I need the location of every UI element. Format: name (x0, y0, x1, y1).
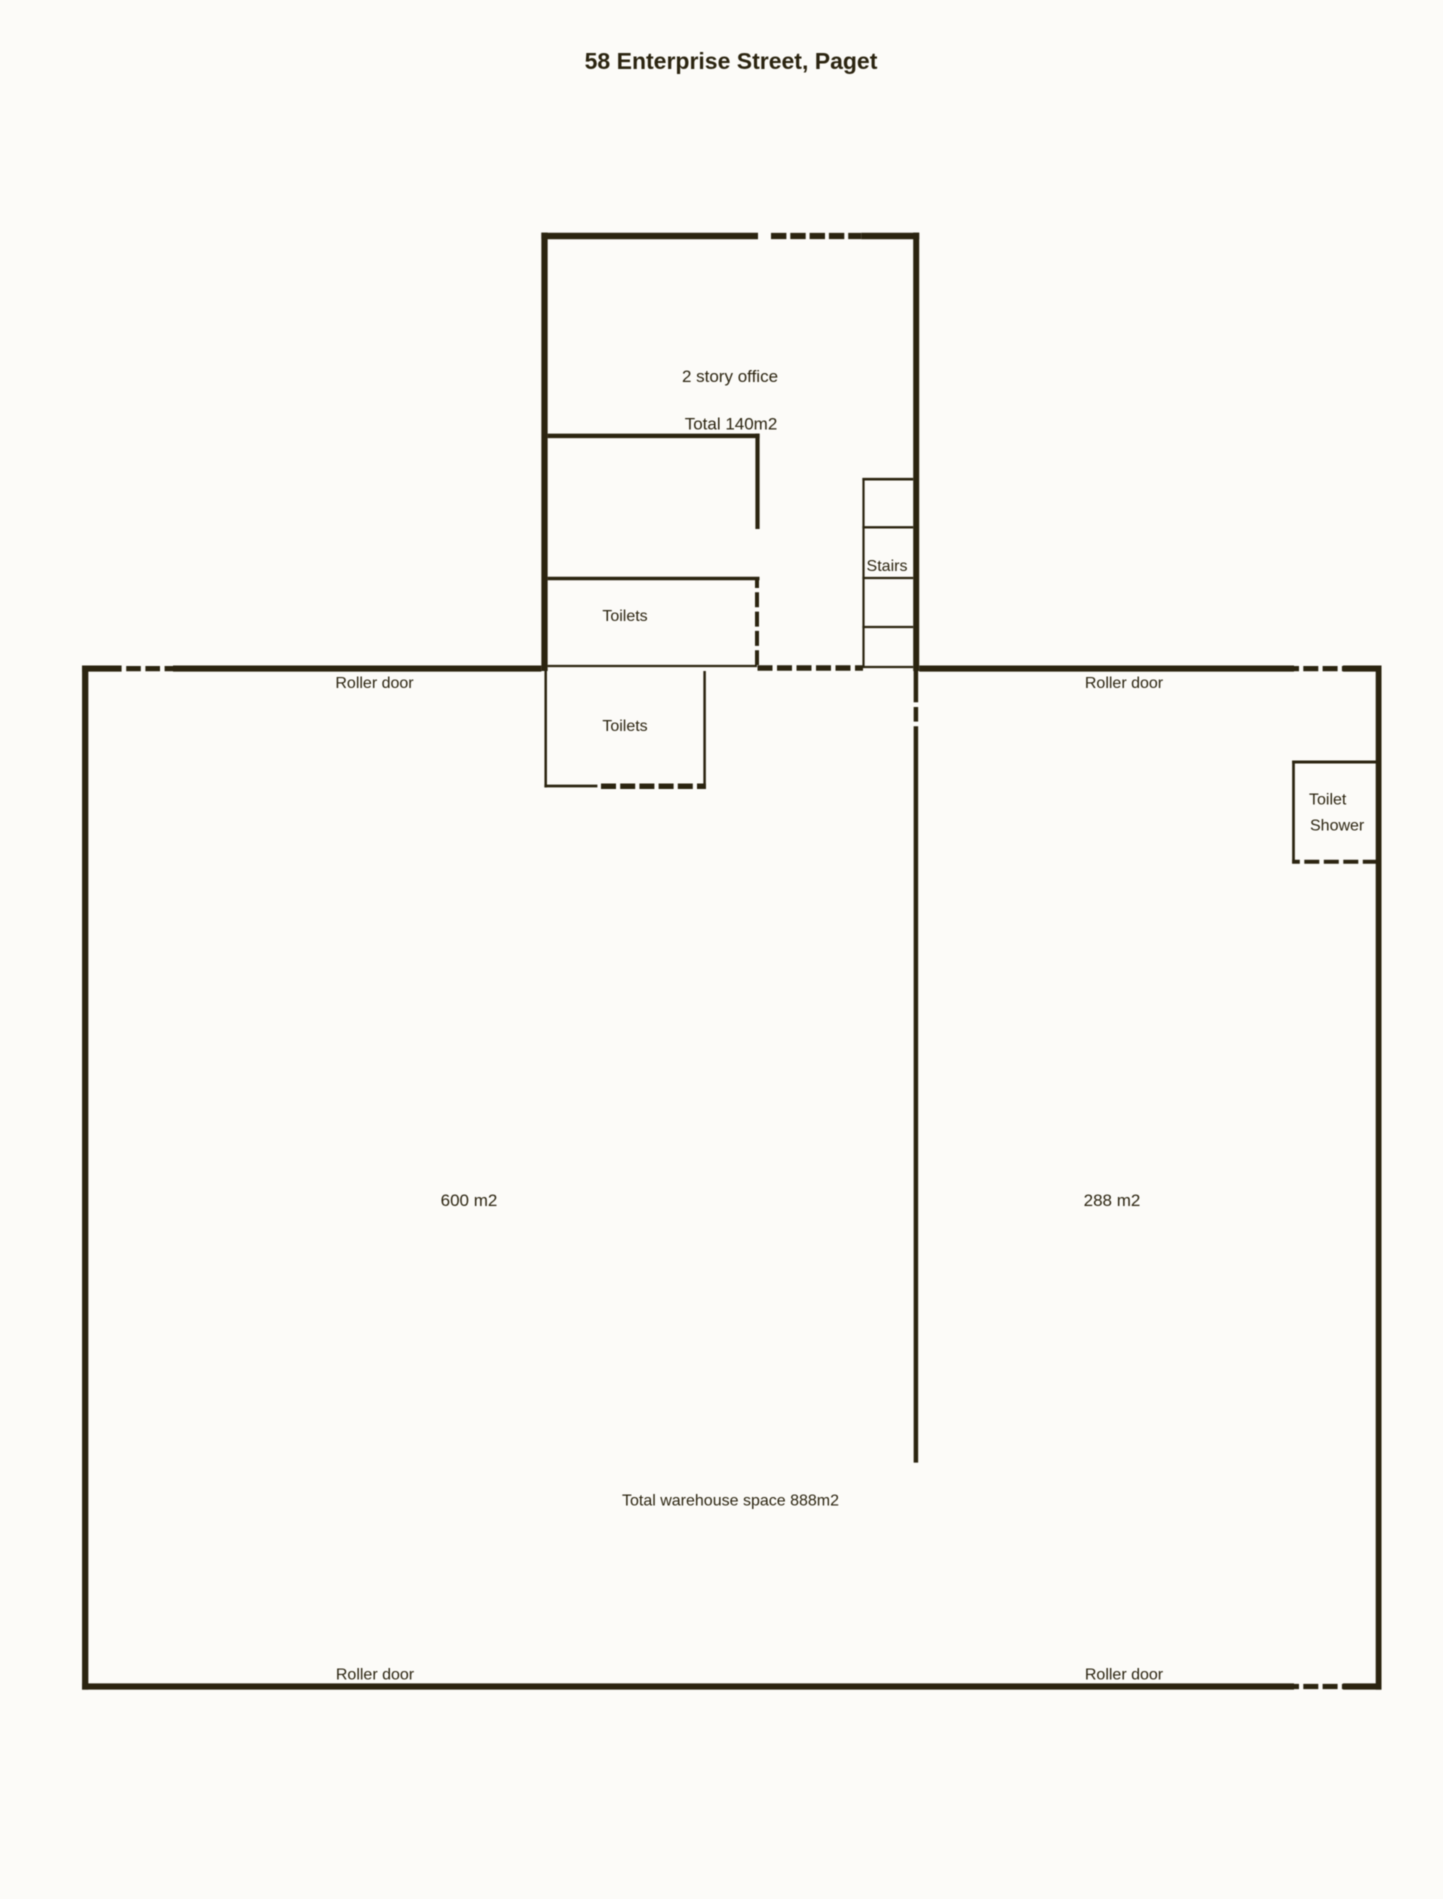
svg-text:58 Enterprise Street, Paget: 58 Enterprise Street, Paget (585, 48, 878, 74)
svg-text:Roller door: Roller door (335, 675, 414, 692)
svg-text:Stairs: Stairs (867, 558, 908, 575)
svg-text:Roller door: Roller door (336, 1667, 415, 1684)
svg-text:Toilet: Toilet (1309, 792, 1347, 809)
svg-text:Total 140m2: Total 140m2 (685, 415, 778, 434)
svg-text:Roller door: Roller door (1085, 1667, 1164, 1684)
svg-text:2 story office: 2 story office (682, 367, 778, 386)
svg-text:288 m2: 288 m2 (1084, 1191, 1141, 1210)
svg-text:Roller door: Roller door (1085, 675, 1164, 692)
svg-text:Toilets: Toilets (602, 718, 647, 735)
svg-text:Shower: Shower (1310, 818, 1365, 835)
svg-text:Total warehouse space 888m2: Total warehouse space 888m2 (622, 1493, 839, 1510)
svg-text:600 m2: 600 m2 (441, 1191, 498, 1210)
svg-text:Toilets: Toilets (602, 608, 647, 625)
